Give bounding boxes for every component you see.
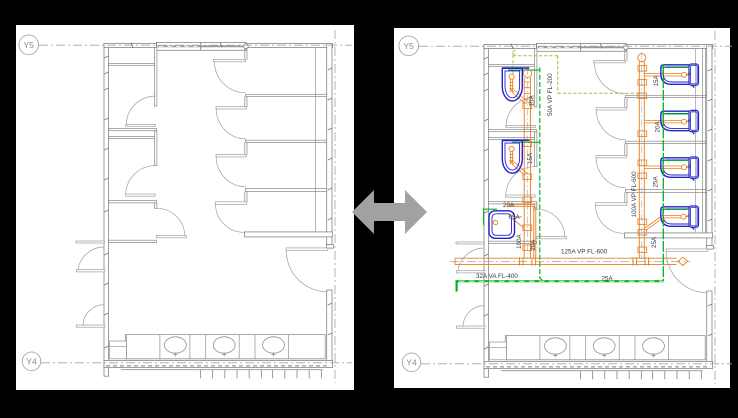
svg-text:20A: 20A [530,239,537,251]
svg-text:50A VP FL-200: 50A VP FL-200 [547,73,554,116]
svg-text:65A: 65A [509,214,521,221]
svg-text:25A: 25A [651,236,658,248]
svg-text:20A: 20A [503,202,515,209]
svg-text:32A VA FL-400: 32A VA FL-400 [476,273,518,280]
svg-text:25A: 25A [653,175,660,187]
svg-text:25A: 25A [602,276,614,283]
svg-text:15A: 15A [529,94,536,106]
svg-text:100A VP FL-600: 100A VP FL-600 [631,171,638,218]
svg-text:15A: 15A [527,152,534,164]
svg-text:15A: 15A [653,74,660,86]
svg-text:20A: 20A [655,120,662,132]
svg-text:125A VP FL-600: 125A VP FL-600 [561,249,608,256]
svg-text:100A: 100A [516,233,523,249]
